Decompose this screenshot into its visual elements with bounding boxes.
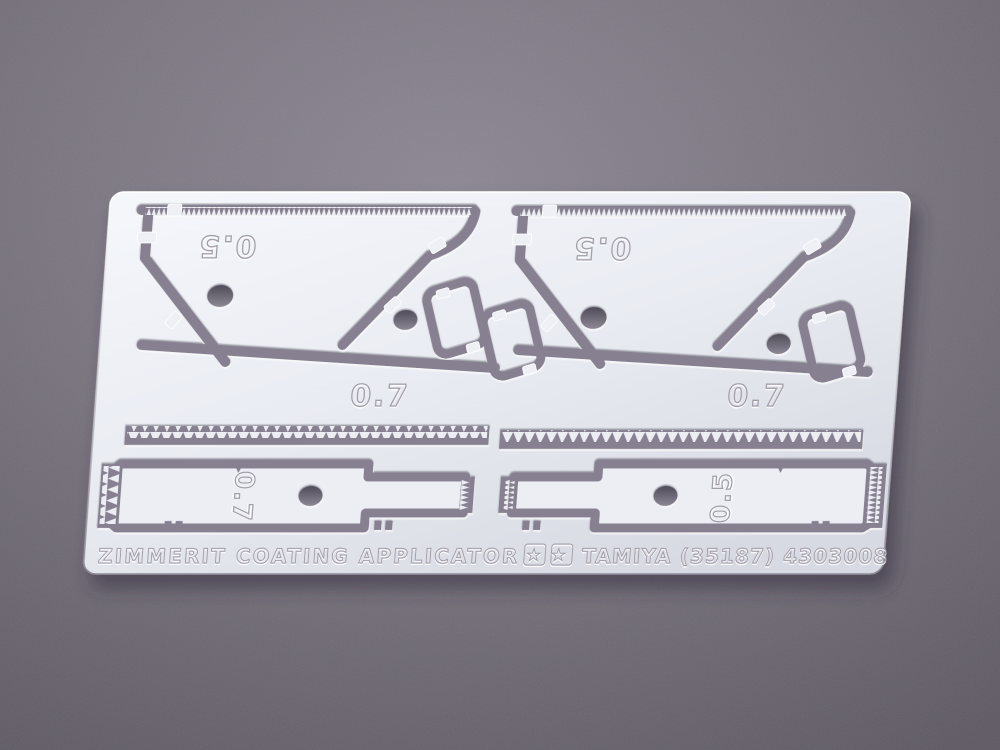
footer-rail-group: ZIMMERIT COATING APPLICATOR ZIMMERIT COA… <box>97 544 889 570</box>
label-top-right-engraving: 0.5 <box>571 230 633 265</box>
label-left-tool-engraving: 0.7 <box>226 471 260 523</box>
logo-stars-icon: ★★ <box>526 546 577 565</box>
coarse-teeth-lower-right-blade <box>502 430 862 442</box>
tamiya-logo-marks: ★★ ★★ <box>523 544 576 567</box>
label-top-right-blade: 0.5 0.5 <box>571 230 633 267</box>
label-right-tool: 0.5 0.5 <box>706 471 741 523</box>
photo-canvas: 0.5 0.5 0.5 0.5 0.7 0.7 0.7 0.7 0.7 0.7 … <box>0 0 1000 750</box>
label-lower-right-engraving: 0.7 <box>726 379 788 414</box>
label-lower-left-engraving: 0.7 <box>349 379 411 414</box>
label-left-tool: 0.7 0.7 <box>224 471 259 523</box>
product-name-text: ZIMMERIT COATING APPLICATOR <box>97 544 520 568</box>
fine-teeth-top-right-blade <box>520 208 847 216</box>
fine-teeth-top-left-blade <box>145 207 472 215</box>
product-photo-stage: 0.5 0.5 0.5 0.5 0.7 0.7 0.7 0.7 0.7 0.7 … <box>0 0 1000 750</box>
etched-sheet-group: 0.5 0.5 0.5 0.5 0.7 0.7 0.7 0.7 0.7 0.7 … <box>83 192 915 574</box>
brand-line-text: TAMIYA (35187) 4303008 <box>581 544 889 568</box>
coarse-teeth-lower-left-blade <box>127 426 488 438</box>
brand-line-engraving: TAMIYA (35187) 4303008 TAMIYA (35187) 43… <box>581 544 889 570</box>
label-lower-left-blade: 0.7 0.7 <box>349 379 411 416</box>
label-right-tool-engraving: 0.5 <box>706 471 740 523</box>
product-name-engraving: ZIMMERIT COATING APPLICATOR ZIMMERIT COA… <box>97 544 520 570</box>
label-lower-right-blade: 0.7 0.7 <box>726 379 788 416</box>
label-top-left-blade: 0.5 0.5 <box>196 228 258 265</box>
label-top-left-engraving: 0.5 <box>196 228 258 263</box>
